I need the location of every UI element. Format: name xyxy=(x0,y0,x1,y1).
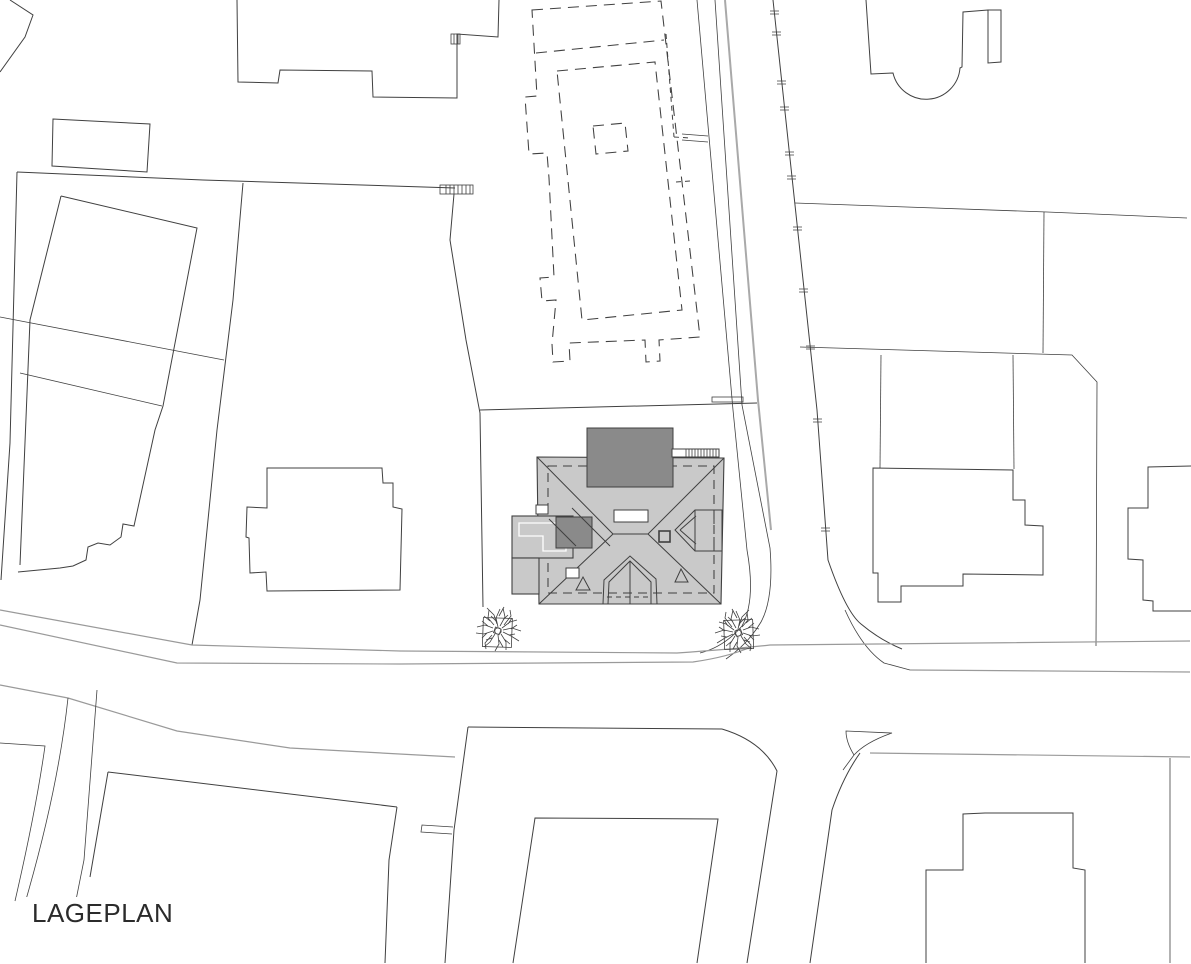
boundary-stub-right xyxy=(1013,355,1014,469)
planned-detail-right xyxy=(666,34,690,182)
boundary-cross-line-1 xyxy=(0,317,224,360)
boundary-central-west xyxy=(192,183,243,645)
gate-symbol xyxy=(712,397,743,402)
street-vertical xyxy=(697,0,910,670)
fence-line-east xyxy=(773,0,902,649)
ridge-skylight xyxy=(614,510,648,522)
tree-left xyxy=(476,607,521,651)
planned-building-dashed xyxy=(525,1,708,362)
parcels-right xyxy=(795,0,1191,646)
building-bottom-left xyxy=(90,772,397,963)
stair-symbol-small xyxy=(451,34,460,44)
large-left-structure-west xyxy=(20,196,61,565)
site-plan-page: LAGEPLAN xyxy=(0,0,1191,964)
driveway-west-edge xyxy=(722,729,777,963)
side-lane-diagonal xyxy=(76,690,97,900)
planned-outline-inner xyxy=(557,62,682,320)
planned-court-square xyxy=(593,123,628,154)
boundary-top-right xyxy=(795,203,1187,218)
large-left-structure xyxy=(18,196,197,572)
street-south-left xyxy=(0,685,455,757)
parcel-notch xyxy=(421,825,453,834)
skylight-small-upper xyxy=(536,505,548,514)
building-far-right xyxy=(1128,466,1191,611)
building-right-middle xyxy=(873,468,1043,602)
small-building-top-left xyxy=(52,119,150,172)
main-building xyxy=(512,428,724,604)
side-lane-line-b xyxy=(0,743,45,901)
page-title: LAGEPLAN xyxy=(32,898,173,928)
parcel-bottom-middle-west xyxy=(445,727,468,963)
boundary-west-edge xyxy=(1,172,17,580)
upper-dark-roof xyxy=(587,428,673,487)
street-south-centre xyxy=(468,727,722,729)
site-plan-drawing: LAGEPLAN xyxy=(0,0,1191,964)
skylight-small-lower xyxy=(566,568,579,578)
entrance-steps xyxy=(440,185,473,194)
chimney xyxy=(659,531,670,542)
traffic-island xyxy=(843,731,892,770)
side-lane-line-a xyxy=(25,698,68,903)
boundary-north-left xyxy=(17,172,455,188)
fence-ticks xyxy=(770,11,830,531)
building-bottom-right xyxy=(926,813,1085,963)
roof-terrace-railing xyxy=(672,449,719,457)
driveway-east-edge xyxy=(810,753,860,963)
building-left-middle xyxy=(246,468,402,591)
building-bottom-middle xyxy=(513,818,718,963)
building-corner-top-left xyxy=(0,0,33,72)
boundary-right-vertical xyxy=(1043,212,1044,353)
parcel-north-line xyxy=(480,403,757,410)
street-vertical-gray-band xyxy=(725,0,771,530)
planned-outline-outer xyxy=(525,1,700,362)
entrance-steps-ticks xyxy=(446,185,470,194)
street-horizontal xyxy=(0,610,1190,963)
boundary-cross-line-2 xyxy=(20,373,162,406)
street-vertical-west-2 xyxy=(715,0,771,659)
building-apse-top-right xyxy=(866,0,1001,99)
boundary-stub-left xyxy=(880,355,881,468)
street-corner-flare xyxy=(845,610,910,670)
boundary-mid-vertical xyxy=(450,194,483,607)
street-south-right xyxy=(870,753,1190,757)
planned-interior-line xyxy=(536,40,664,53)
building-top-centre xyxy=(237,0,499,98)
curb-north-upper xyxy=(0,610,1190,653)
curb-north-right-lower xyxy=(910,670,1190,672)
annex-left-lower xyxy=(512,558,539,594)
